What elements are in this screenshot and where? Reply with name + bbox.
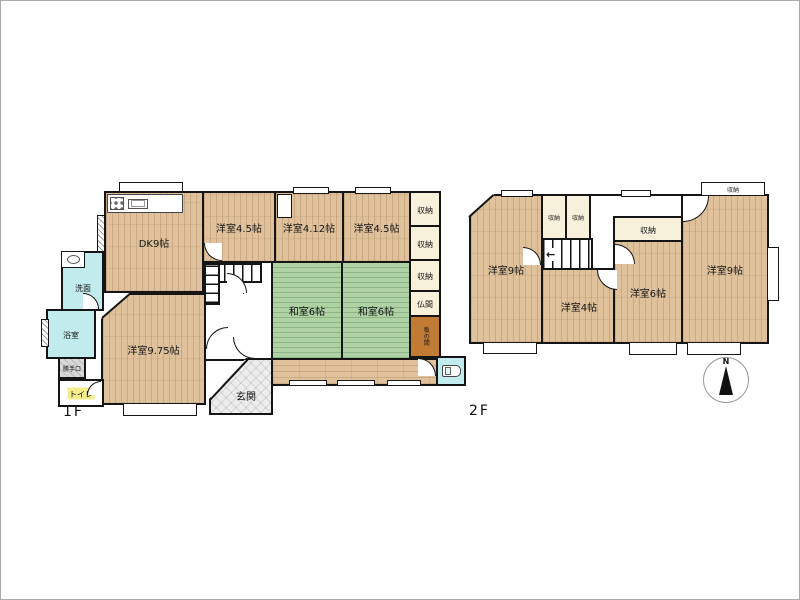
floor-label-1f: 1F [63, 404, 84, 420]
room-label-western-4: 洋室4帖 [561, 299, 597, 314]
stairs-2f-direction-arrow: ← [546, 248, 555, 261]
room-label-butsuma: 仏間 [417, 298, 433, 310]
room-storage-3: 収納 [409, 259, 441, 292]
room-label-entrance: 玄関 [236, 388, 256, 403]
floor-plan-canvas: DK9帖 洋室4.5帖 洋室4.12帖 洋室4.5帖 収納 収納 収納 [0, 0, 800, 600]
bay-window-2f-side [767, 247, 779, 301]
north-label: N [723, 357, 730, 366]
room-toilet-corridor [436, 356, 466, 386]
wc-nook [61, 251, 85, 268]
bay-window-2f-left [483, 342, 537, 354]
room-storage-top-right: 収納 [701, 182, 765, 196]
floor-label-2f: 2F [469, 403, 490, 419]
room-label-western-6: 洋室6帖 [630, 285, 666, 300]
room-label-storage-1: 収納 [417, 203, 433, 215]
room-label-dk: DK9帖 [139, 235, 170, 250]
bay-window-2f-middle [629, 342, 677, 355]
bay-window-2f-right [687, 342, 741, 355]
room-label-western-45-b: 洋室4.5帖 [354, 220, 400, 235]
room-japanese-6-b: 和室6帖 [341, 261, 411, 360]
room-label-bathroom: 浴室 [63, 328, 79, 340]
top-window-2 [355, 187, 391, 194]
kitchen-counter [107, 194, 183, 213]
sink-icon [128, 199, 148, 209]
room-japanese-6-a: 和室6帖 [271, 261, 343, 360]
room-label-storage-2: 収納 [417, 237, 433, 249]
room-label-storage-a: 収納 [548, 213, 560, 222]
room-label-western-412: 洋室4.12帖 [283, 220, 335, 235]
room-storage-mid: 収納 [613, 216, 683, 242]
room-western-975: 洋室9.75帖 [101, 293, 206, 405]
room-label-storage-3: 収納 [417, 270, 433, 282]
room-itanoma: 板の間 [409, 315, 441, 358]
window-2f-top-1 [501, 190, 533, 197]
room-storage-a: 収納 [541, 194, 567, 240]
stove-icon [110, 197, 124, 210]
room-butsuma: 仏間 [409, 290, 441, 317]
room-storage-1: 収納 [409, 191, 441, 227]
room-label-western-975: 洋室9.75帖 [127, 342, 179, 357]
room-label-japanese-6-b: 和室6帖 [358, 303, 394, 318]
room-bathroom: 浴室 [46, 309, 96, 359]
top-window-1 [293, 187, 329, 194]
bay-window-975 [123, 403, 197, 416]
stairs-1f-lower-run [204, 263, 220, 305]
kitchen-bay-window [119, 182, 183, 192]
compass-icon: N [703, 357, 749, 403]
corridor-window-1 [289, 380, 327, 386]
window-2f-top-2 [621, 190, 651, 197]
north-needle-icon [719, 366, 733, 395]
toilet-side-icon [442, 365, 461, 377]
closet-notch [277, 194, 292, 218]
room-label-storage-b: 収納 [572, 213, 584, 222]
room-storage-b: 収納 [565, 194, 591, 240]
room-label-western-9-right: 洋室9帖 [707, 262, 743, 277]
toilet-bowl-icon [67, 255, 80, 264]
room-label-washroom: 洗面 [75, 281, 91, 293]
corridor-window-3 [387, 380, 421, 386]
room-label-western-45-a: 洋室4.5帖 [216, 220, 262, 235]
corridor-window-2 [337, 380, 375, 386]
room-label-storage-top-right: 収納 [727, 185, 739, 194]
bathroom-window [41, 319, 49, 347]
room-label-storage-mid: 収納 [640, 223, 656, 235]
room-label-japanese-6-a: 和室6帖 [289, 303, 325, 318]
room-label-western-9-left: 洋室9帖 [488, 262, 524, 277]
room-western-45-b: 洋室4.5帖 [342, 191, 411, 263]
room-label-back-door: 勝手口 [63, 364, 81, 373]
room-storage-2: 収納 [409, 225, 441, 261]
room-label-itanoma: 板の間 [421, 327, 430, 347]
room-back-door: 勝手口 [58, 357, 86, 379]
room-western-9-left: 洋室9帖 [469, 194, 543, 344]
